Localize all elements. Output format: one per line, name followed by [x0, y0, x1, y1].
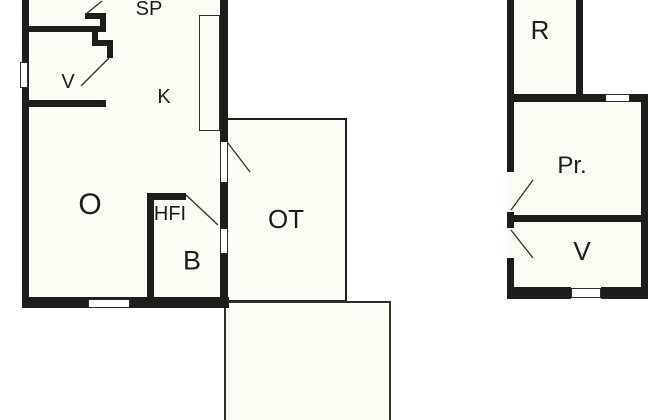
room-label-r: R [531, 17, 550, 43]
room-label-sp: SP [136, 0, 163, 19]
room-label-b: B [183, 248, 201, 275]
bath-window [220, 228, 228, 254]
main-right-wall-upper [220, 0, 228, 142]
annex-right-wall [641, 94, 648, 299]
zigzag-connector-1 [100, 19, 106, 27]
main-right-wall-lower [220, 254, 228, 297]
annex-divider-wall [507, 215, 648, 222]
kitchen-counter [199, 15, 220, 131]
annex-bottom-wall-right [601, 287, 648, 299]
right-annex-lower-footprint [507, 94, 648, 299]
room-label-hfi: HFI [154, 204, 186, 224]
main-left-wall [22, 0, 29, 308]
kitchen-terrace-door-opening [220, 142, 228, 182]
floor-plan: SP V K O HFI B OT R Pr. V [0, 0, 650, 420]
room-label-v-right: V [573, 238, 590, 264]
room-label-ot: OT [268, 206, 304, 232]
annex-left-wall-upper [507, 0, 514, 172]
annex-top-window [605, 94, 630, 102]
zigzag-connector-3 [107, 46, 113, 58]
living-room-window [88, 299, 130, 308]
room-label-o: O [78, 190, 101, 220]
annex-bottom-wall-left [507, 287, 571, 299]
annex-top-wall-left [507, 94, 605, 102]
open-terrace-outline [224, 301, 391, 420]
annex-bottom-window [571, 288, 601, 298]
room-label-pr: Pr. [557, 154, 586, 178]
vroom-window [20, 62, 28, 88]
vroom-bottom-wall [29, 100, 106, 107]
room-label-v-left: V [61, 72, 74, 92]
hall-top-wall [147, 193, 186, 200]
room-label-k: K [157, 87, 170, 107]
main-right-wall-mid [220, 182, 228, 228]
annex-r-right-wall [576, 0, 583, 102]
